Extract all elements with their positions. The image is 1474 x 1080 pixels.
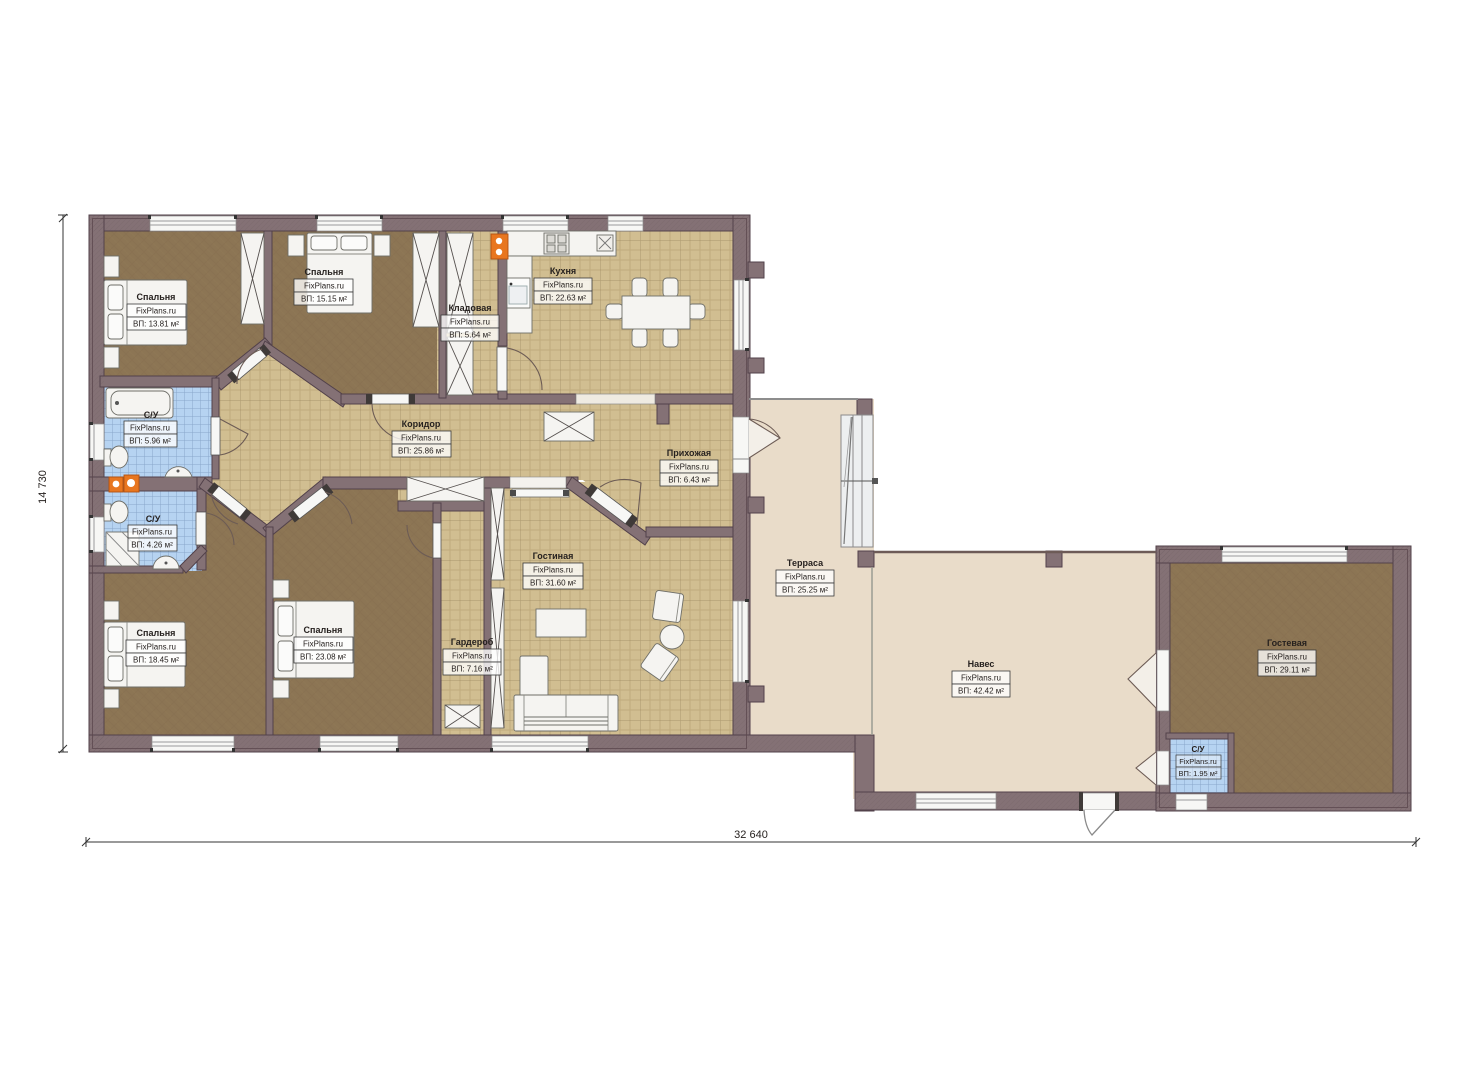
svg-text:ВП: 42.42 м²: ВП: 42.42 м² — [958, 687, 1004, 696]
svg-text:14 730: 14 730 — [37, 470, 49, 504]
svg-text:ВП: 15.15 м²: ВП: 15.15 м² — [301, 295, 347, 304]
svg-text:FixPlans.ru: FixPlans.ru — [533, 566, 573, 575]
svg-text:FixPlans.ru: FixPlans.ru — [1267, 653, 1307, 662]
svg-text:ВП: 18.45 м²: ВП: 18.45 м² — [133, 656, 179, 665]
svg-text:С/У: С/У — [1192, 745, 1206, 754]
svg-text:Спальня: Спальня — [304, 625, 343, 635]
svg-text:FixPlans.ru: FixPlans.ru — [1179, 757, 1217, 766]
svg-text:ВП: 5.64 м²: ВП: 5.64 м² — [449, 331, 491, 340]
svg-text:ВП: 29.11 м²: ВП: 29.11 м² — [1264, 666, 1310, 675]
svg-text:ВП: 25.25 м²: ВП: 25.25 м² — [782, 586, 828, 595]
svg-text:Прихожая: Прихожая — [667, 448, 711, 458]
svg-text:Спальня: Спальня — [137, 628, 176, 638]
svg-text:FixPlans.ru: FixPlans.ru — [130, 424, 170, 433]
svg-text:FixPlans.ru: FixPlans.ru — [785, 573, 825, 582]
svg-text:Спальня: Спальня — [137, 292, 176, 302]
svg-text:FixPlans.ru: FixPlans.ru — [132, 528, 172, 537]
svg-text:ВП: 4.26 м²: ВП: 4.26 м² — [131, 541, 173, 550]
svg-text:FixPlans.ru: FixPlans.ru — [303, 640, 343, 649]
svg-text:Гостиная: Гостиная — [533, 551, 574, 561]
svg-text:FixPlans.ru: FixPlans.ru — [304, 282, 344, 291]
svg-text:32 640: 32 640 — [734, 829, 768, 841]
svg-text:Спальня: Спальня — [305, 267, 344, 277]
svg-text:Кладовая: Кладовая — [448, 303, 491, 313]
svg-text:Гостевая: Гостевая — [1267, 638, 1307, 648]
svg-text:ВП: 5.96 м²: ВП: 5.96 м² — [129, 437, 171, 446]
svg-text:Кухня: Кухня — [550, 266, 576, 276]
svg-text:FixPlans.ru: FixPlans.ru — [961, 674, 1001, 683]
svg-text:ВП: 23.08 м²: ВП: 23.08 м² — [300, 653, 346, 662]
svg-text:С/У: С/У — [146, 514, 161, 524]
svg-text:ВП: 6.43 м²: ВП: 6.43 м² — [668, 476, 710, 485]
svg-text:Терраса: Терраса — [787, 558, 824, 568]
svg-text:ВП: 1.95 м²: ВП: 1.95 м² — [1179, 769, 1218, 778]
svg-text:FixPlans.ru: FixPlans.ru — [136, 643, 176, 652]
svg-text:FixPlans.ru: FixPlans.ru — [450, 318, 490, 327]
svg-text:FixPlans.ru: FixPlans.ru — [669, 463, 709, 472]
svg-text:ВП: 25.86 м²: ВП: 25.86 м² — [398, 447, 444, 456]
svg-text:ВП: 13.81 м²: ВП: 13.81 м² — [133, 320, 179, 329]
svg-text:С/У: С/У — [144, 410, 159, 420]
svg-text:ВП: 22.63 м²: ВП: 22.63 м² — [540, 294, 586, 303]
svg-text:Коридор: Коридор — [402, 419, 441, 429]
svg-text:FixPlans.ru: FixPlans.ru — [136, 307, 176, 316]
svg-text:ВП: 7.16 м²: ВП: 7.16 м² — [451, 665, 493, 674]
svg-text:Гардероб: Гардероб — [451, 637, 494, 647]
svg-text:FixPlans.ru: FixPlans.ru — [543, 281, 583, 290]
svg-text:FixPlans.ru: FixPlans.ru — [452, 652, 492, 661]
svg-text:FixPlans.ru: FixPlans.ru — [401, 434, 441, 443]
svg-text:Навес: Навес — [968, 659, 995, 669]
svg-text:ВП: 31.60 м²: ВП: 31.60 м² — [530, 579, 576, 588]
